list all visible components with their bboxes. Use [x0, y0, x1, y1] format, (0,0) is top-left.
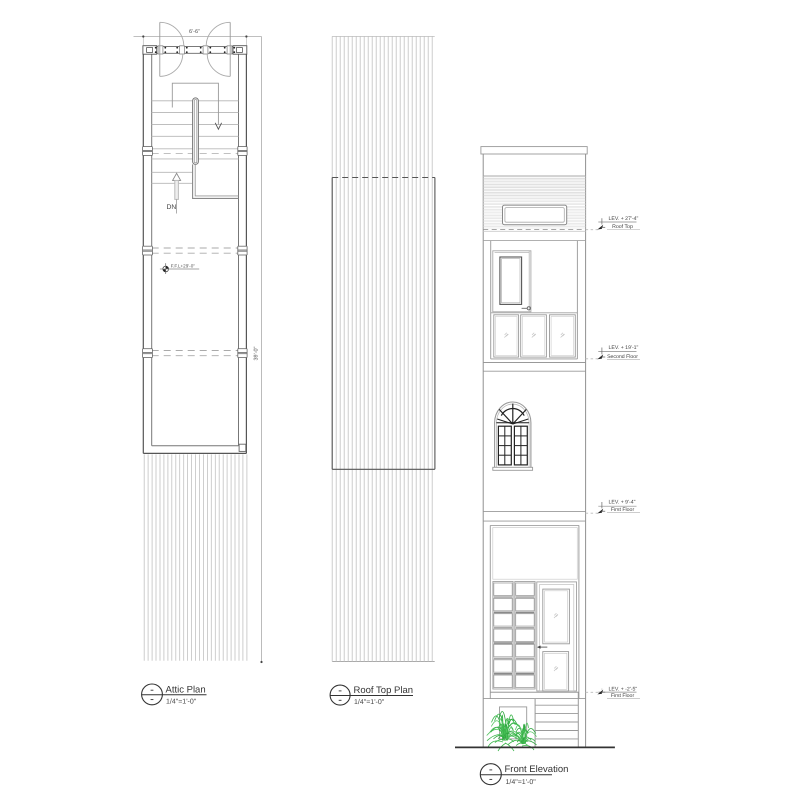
svg-text:6'-6": 6'-6"	[189, 29, 200, 35]
svg-text:1/4"=1'-0": 1/4"=1'-0"	[166, 698, 197, 706]
svg-text:LEV. + 19'-1": LEV. + 19'-1"	[609, 345, 639, 351]
svg-text:LEV. + 27'-4": LEV. + 27'-4"	[609, 216, 639, 222]
svg-text:F.F.L+29'-0": F.F.L+29'-0"	[171, 263, 195, 268]
svg-text:39'-0": 39'-0"	[253, 346, 259, 360]
svg-text:First Floor: First Floor	[611, 507, 635, 513]
svg-text:LEV. + 9'-4": LEV. + 9'-4"	[609, 500, 636, 506]
svg-text:Front Elevation: Front Elevation	[505, 764, 569, 775]
svg-text:1/4"=1'-0": 1/4"=1'-0"	[354, 698, 385, 706]
svg-text:Roof Top Plan: Roof Top Plan	[354, 685, 414, 696]
svg-text:LEV. + -2'-5": LEV. + -2'-5"	[609, 686, 638, 692]
svg-text:Attic Plan: Attic Plan	[166, 684, 206, 695]
svg-text:DN: DN	[167, 204, 177, 211]
svg-text:1/4"=1'-0": 1/4"=1'-0"	[506, 778, 537, 786]
